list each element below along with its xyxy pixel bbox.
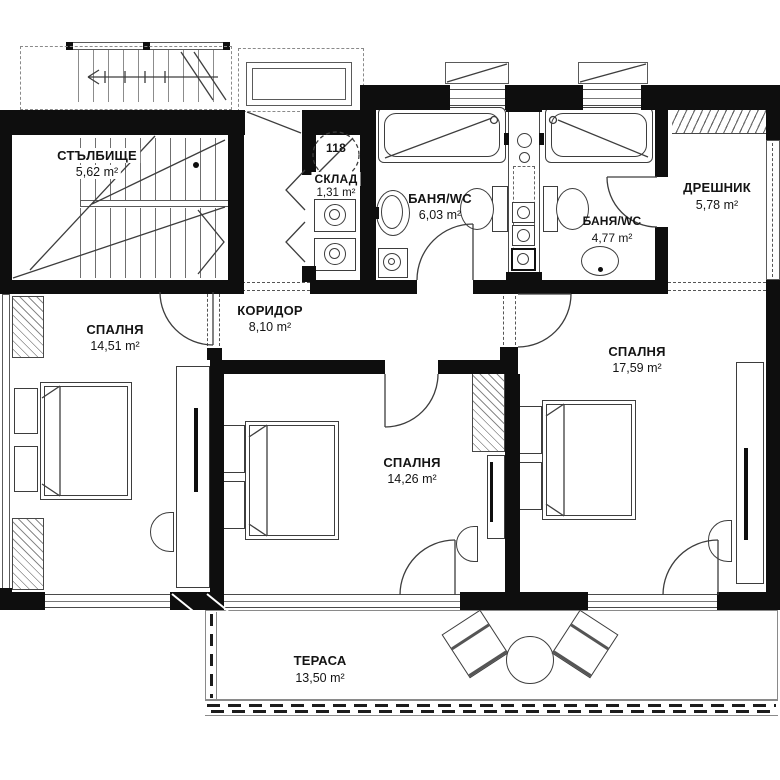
desk xyxy=(736,362,764,584)
unit-number-badge: 118 xyxy=(326,141,346,155)
open-passage xyxy=(668,282,766,283)
stair-landing-rail xyxy=(80,200,230,207)
open-passage xyxy=(668,290,766,291)
room-label-terrace-name: ТЕРАСА xyxy=(294,653,347,668)
desk xyxy=(176,366,210,588)
window xyxy=(45,594,170,608)
wall xyxy=(170,592,224,610)
wall xyxy=(232,110,245,135)
room-label-bath2-area: 4,77 m² xyxy=(592,231,633,245)
shaft-meter xyxy=(512,225,535,246)
room-label-corridor-name: КОРИДОР xyxy=(237,303,303,318)
washing-machine xyxy=(314,199,356,232)
window xyxy=(450,89,505,106)
dryer-drum xyxy=(324,243,346,265)
room-label-bedroom2-area: 14,26 m² xyxy=(387,472,436,486)
wall xyxy=(360,85,450,110)
double-bed xyxy=(40,382,132,500)
room-label-bath2-name: БАНЯ/WC xyxy=(583,214,642,228)
entry-porch-slab-inner xyxy=(252,68,346,100)
wall xyxy=(0,110,12,294)
room-label-storage-name: СКЛАД xyxy=(311,172,360,186)
wall xyxy=(717,592,780,610)
window xyxy=(583,89,641,106)
nightstand xyxy=(518,406,542,454)
nightstand xyxy=(14,388,38,434)
desk-monitor xyxy=(490,462,493,522)
window-sill xyxy=(445,62,509,84)
wall xyxy=(505,374,520,592)
shaft-cap xyxy=(506,105,542,112)
stair-newel-dot xyxy=(193,162,199,168)
wall xyxy=(210,360,224,592)
room-label-terrace-area: 13,50 m² xyxy=(295,671,344,685)
window-terrace-door xyxy=(588,594,717,608)
door-opening xyxy=(515,296,516,345)
wall xyxy=(310,280,417,294)
wall xyxy=(655,105,668,177)
window xyxy=(766,140,780,280)
desk-chair xyxy=(150,512,174,552)
room-label-storage-area: 1,31 m² xyxy=(314,187,359,199)
double-bed xyxy=(542,400,636,520)
wall xyxy=(0,588,12,610)
desk-chair xyxy=(456,526,478,562)
bathtub xyxy=(545,107,653,163)
window-terrace-door xyxy=(224,594,460,608)
room-label-bedroom1-area: 14,51 m² xyxy=(90,339,139,353)
wardrobe xyxy=(472,366,505,452)
wall-thin xyxy=(2,294,10,590)
wall xyxy=(213,360,385,374)
room-label-bedroom3-name: СПАЛНЯ xyxy=(608,344,665,359)
window-sill xyxy=(578,62,648,84)
room-label-stairwell-name: СТЪЛБИЩЕ xyxy=(54,148,140,163)
window-dash xyxy=(772,143,773,277)
terrace-railing xyxy=(205,700,778,716)
wall xyxy=(766,110,780,140)
wall xyxy=(228,110,244,294)
nightstand xyxy=(221,425,245,473)
desk-monitor xyxy=(194,408,198,492)
wall xyxy=(460,592,588,610)
nightstand xyxy=(221,481,245,529)
shaft-meter xyxy=(512,202,535,223)
wall xyxy=(302,135,316,175)
room-label-bedroom3-area: 17,59 m² xyxy=(612,361,661,375)
wall xyxy=(360,85,376,294)
room-label-bedroom2-name: СПАЛНЯ xyxy=(383,455,440,470)
dryer xyxy=(314,238,356,271)
wall xyxy=(0,280,232,294)
desk-chair xyxy=(708,520,732,562)
room-label-bedroom1-name: СПАЛНЯ xyxy=(86,322,143,337)
washing-machine-drum xyxy=(324,204,346,226)
nightstand xyxy=(14,446,38,492)
nightstand xyxy=(518,462,542,510)
floor-drain xyxy=(378,248,408,278)
shaft-meter-main xyxy=(511,248,536,271)
door-opening xyxy=(503,296,504,345)
terrace-railing-left xyxy=(205,612,217,700)
shaft-pipe xyxy=(517,133,532,148)
washbasin-tap xyxy=(598,267,603,272)
room-label-closet-area: 5,78 m² xyxy=(696,198,738,212)
door-opening xyxy=(207,294,208,346)
room-label-bath1-area: 6,03 m² xyxy=(419,208,461,222)
wall xyxy=(12,592,45,610)
terrace-table xyxy=(506,636,554,684)
double-bed xyxy=(245,421,339,540)
wall xyxy=(766,280,780,610)
wall xyxy=(8,110,232,135)
desk-monitor xyxy=(744,448,748,540)
shaft-pipe xyxy=(519,152,530,163)
door-opening xyxy=(219,294,220,346)
clothes-rail xyxy=(672,108,766,134)
exterior-stair-treads xyxy=(78,50,228,102)
bathtub xyxy=(378,107,506,163)
room-label-closet-name: ДРЕШНИК xyxy=(683,180,751,195)
room-label-stairwell-area: 5,62 m² xyxy=(73,165,121,179)
room-label-corridor-area: 8,10 m² xyxy=(249,320,291,334)
toilet-cistern xyxy=(492,186,508,232)
wall xyxy=(438,360,505,374)
room-label-bath1-name: БАНЯ/WC xyxy=(408,191,472,206)
wall xyxy=(207,348,222,360)
shaft-flange xyxy=(504,133,509,145)
washbasin xyxy=(376,190,410,236)
wardrobe xyxy=(12,518,44,590)
stair-treads-lower xyxy=(80,208,228,278)
floor-plan: СТЪЛБИЩЕ 5,62 m² 118 СКЛАД 1,31 m² БАНЯ/… xyxy=(0,0,780,780)
shaft-cap xyxy=(506,272,542,283)
wardrobe xyxy=(12,296,44,358)
shaft-flange xyxy=(539,133,544,145)
